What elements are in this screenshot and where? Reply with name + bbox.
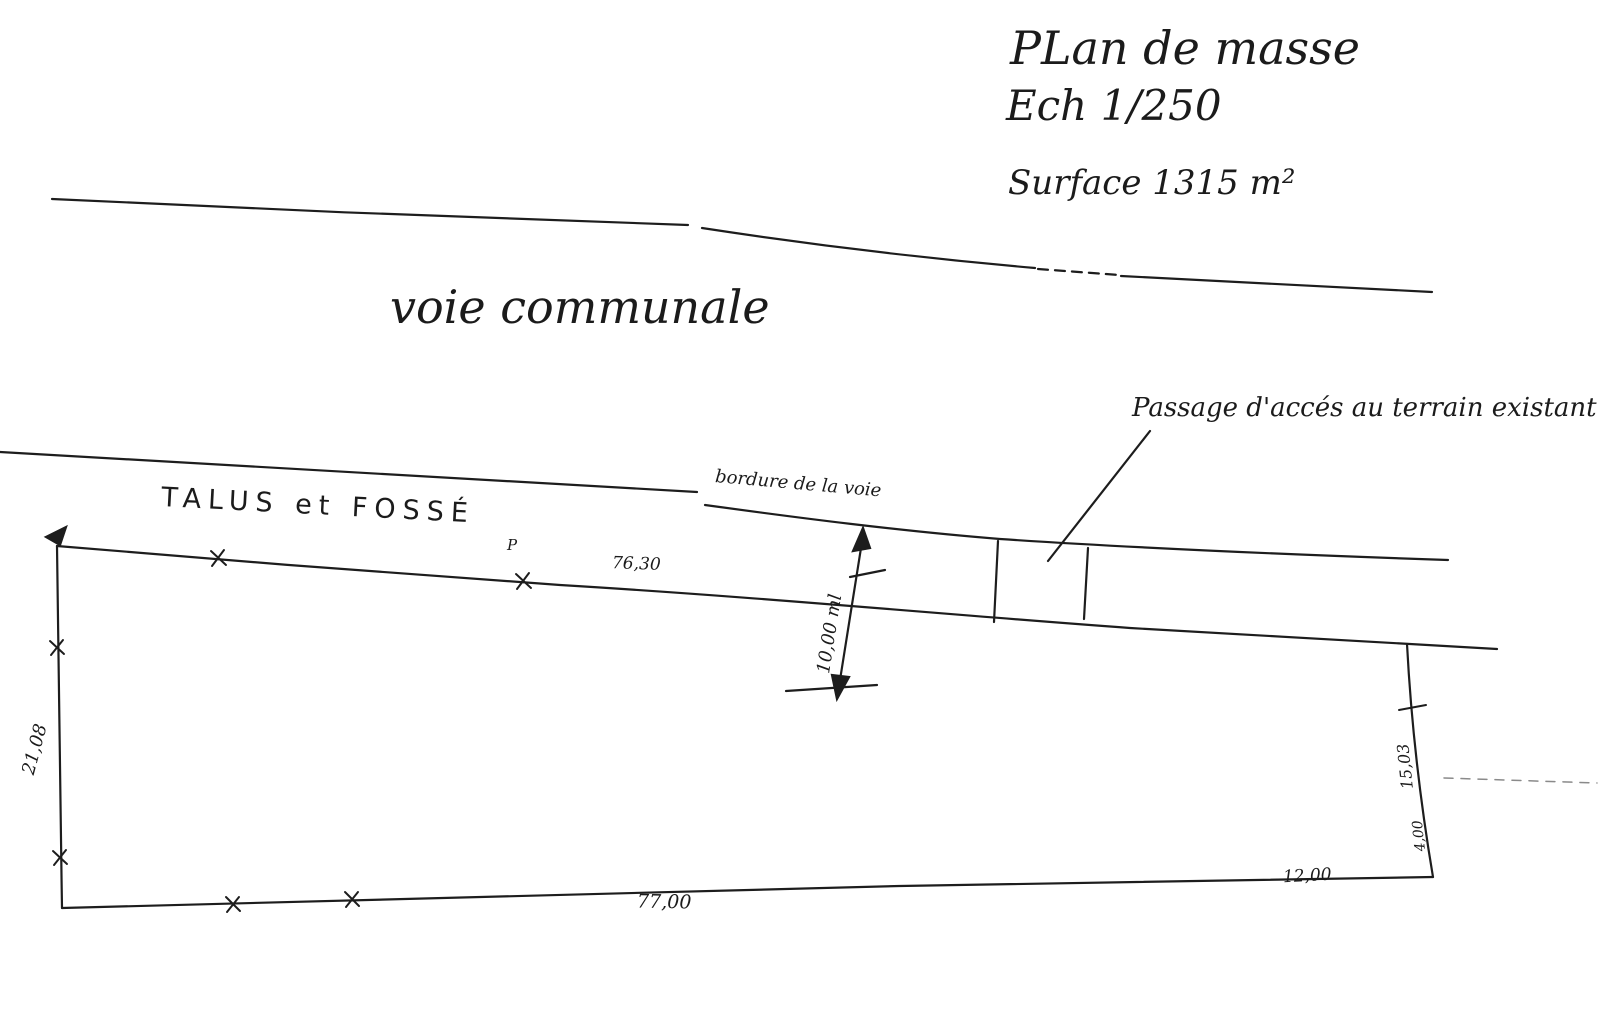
parcel-left-boundary	[57, 546, 62, 908]
tick-mark	[53, 850, 67, 865]
passage-leader-line	[1048, 431, 1150, 561]
dimension-arrowhead-top	[853, 528, 870, 551]
road-upper-edge-mid	[702, 228, 1035, 268]
boundary-tick-marks	[50, 550, 1426, 912]
dimension-top-width: 76,30	[612, 555, 661, 575]
site-plan-drawing	[0, 0, 1600, 1035]
road-upper-edge-left	[52, 199, 688, 225]
p-marker-label: P	[507, 538, 517, 554]
dimension-bottom-tick	[786, 685, 877, 691]
access-passage-label: Passage d'accés au terrain existant	[1132, 395, 1597, 422]
dimension-bottom-right: 12,00	[1283, 867, 1333, 887]
talus-top-line	[0, 452, 697, 492]
road-name-label: voie communale	[390, 283, 770, 331]
dimension-top-tick	[850, 570, 885, 577]
plan-title: PLan de masse	[1010, 24, 1360, 72]
parcel-bottom-boundary	[62, 877, 1433, 908]
bordure-line	[705, 505, 1448, 560]
passage-left-line	[994, 541, 998, 622]
parcel-top-boundary	[57, 546, 1497, 649]
dimension-right-lower: 4,00	[1411, 819, 1429, 852]
passage-right-line	[1084, 548, 1088, 619]
dimension-bottom-width: 77,00	[637, 893, 692, 914]
plan-canvas: PLan de masse Ech 1/250 Surface 1315 m² …	[0, 0, 1600, 1035]
tick-mark	[50, 640, 64, 655]
corner-marker	[46, 527, 66, 545]
road-upper-edge-dashed	[1038, 269, 1119, 275]
plan-scale: Ech 1/250	[1006, 84, 1222, 128]
road-upper-edge-right	[1121, 276, 1432, 292]
faint-dashed-line	[1444, 778, 1597, 783]
surface-area-label: Surface 1315 m²	[1008, 166, 1295, 202]
